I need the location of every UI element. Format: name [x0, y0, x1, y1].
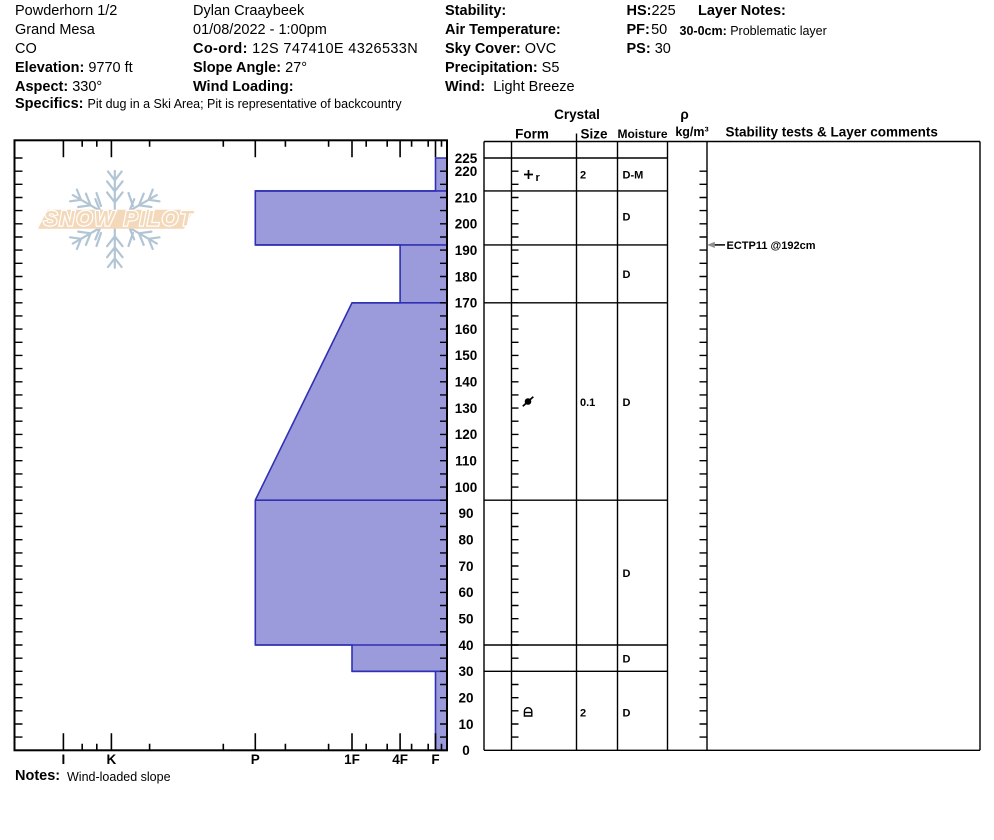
svg-text:100: 100 — [455, 480, 478, 495]
svg-text:60: 60 — [458, 585, 473, 600]
svg-text:r: r — [536, 172, 541, 184]
svg-text:Moisture: Moisture — [617, 127, 667, 141]
svg-text:0: 0 — [462, 743, 470, 758]
svg-text:20: 20 — [458, 691, 473, 706]
svg-text:50: 50 — [458, 612, 473, 627]
svg-text:130: 130 — [455, 401, 478, 416]
svg-text:Crystal: Crystal — [554, 107, 600, 122]
svg-text:D: D — [623, 269, 631, 281]
svg-text:140: 140 — [455, 375, 478, 390]
svg-text:80: 80 — [458, 533, 473, 548]
svg-text:190: 190 — [455, 243, 478, 258]
svg-text:110: 110 — [455, 454, 477, 469]
svg-text:180: 180 — [455, 269, 478, 284]
svg-text:D: D — [623, 568, 631, 580]
svg-text:D-M: D-M — [623, 169, 644, 181]
svg-text:Size: Size — [580, 127, 608, 142]
svg-text:210: 210 — [455, 190, 478, 205]
svg-text:10: 10 — [458, 717, 473, 732]
svg-text:30: 30 — [458, 664, 473, 679]
svg-text:200: 200 — [455, 217, 478, 232]
svg-text:170: 170 — [455, 296, 478, 311]
svg-text:70: 70 — [458, 559, 473, 574]
svg-text:Stability tests & Layer commen: Stability tests & Layer comments — [726, 125, 938, 140]
svg-text:K: K — [107, 752, 117, 767]
svg-text:kg/m³: kg/m³ — [675, 125, 708, 139]
svg-text:D: D — [623, 707, 631, 719]
svg-text:D: D — [623, 397, 631, 409]
svg-text:2: 2 — [580, 169, 586, 181]
svg-text:1F: 1F — [344, 752, 360, 767]
svg-text:90: 90 — [458, 506, 473, 521]
svg-text:SNOW PILOT: SNOW PILOT — [44, 208, 195, 231]
svg-text:ECTP11 @192cm: ECTP11 @192cm — [727, 240, 816, 252]
svg-text:P: P — [251, 752, 260, 767]
svg-text:225: 225 — [455, 151, 478, 166]
svg-text:ρ: ρ — [680, 107, 688, 122]
svg-text:4F: 4F — [392, 752, 408, 767]
svg-text:F: F — [431, 752, 439, 767]
svg-text:2: 2 — [580, 707, 586, 719]
svg-text:Form: Form — [515, 127, 549, 142]
svg-text:160: 160 — [455, 322, 478, 337]
svg-text:150: 150 — [455, 348, 478, 363]
svg-text:40: 40 — [458, 638, 473, 653]
svg-text:0.1: 0.1 — [580, 397, 595, 409]
svg-text:220: 220 — [455, 164, 478, 179]
svg-text:D: D — [623, 212, 631, 224]
svg-text:120: 120 — [455, 427, 478, 442]
svg-text:D: D — [623, 653, 631, 665]
svg-text:I: I — [62, 752, 66, 767]
